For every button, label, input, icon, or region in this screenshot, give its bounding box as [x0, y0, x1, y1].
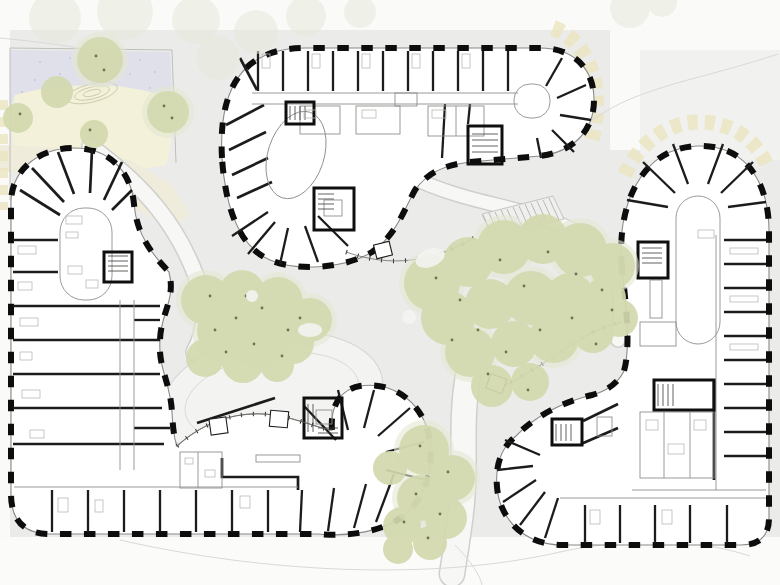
floor-plan-canvas: Architectural site floor plan: three org…: [0, 0, 780, 585]
site-plan-svg: Architectural site floor plan: three org…: [0, 0, 780, 585]
